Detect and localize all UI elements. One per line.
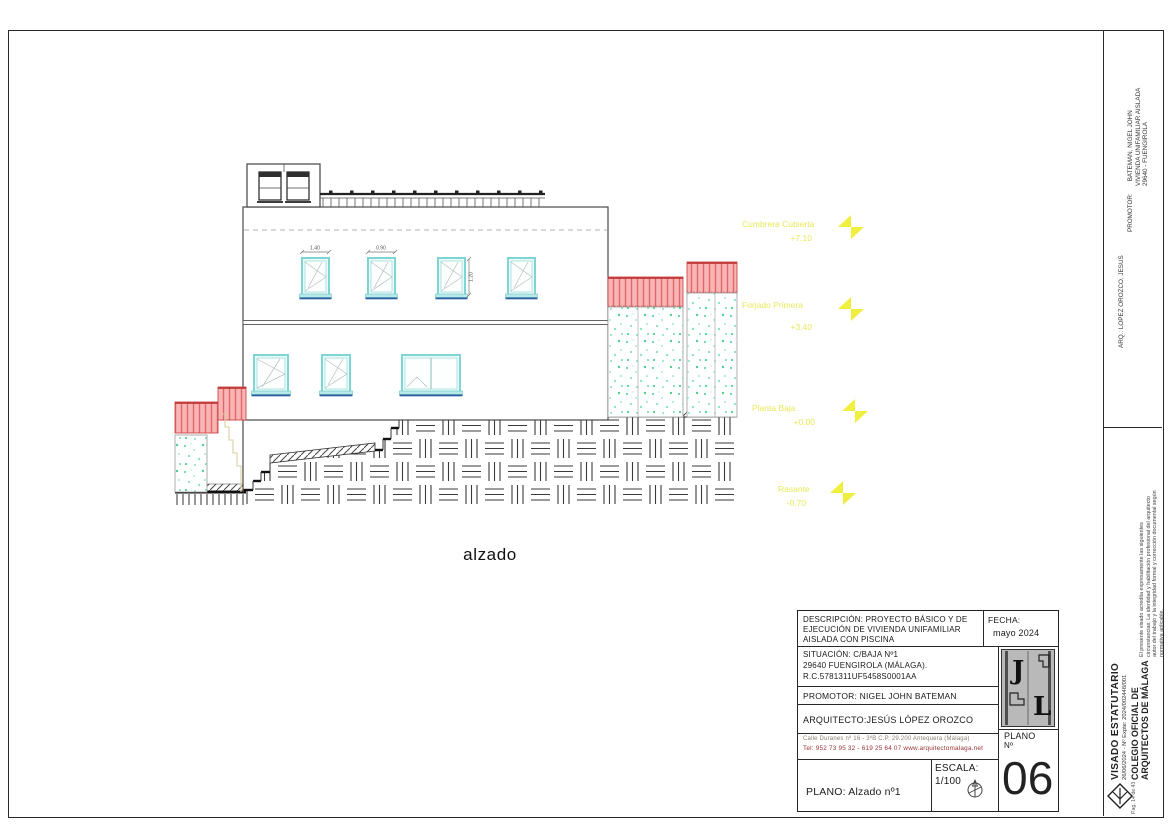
studio-phone: Tel: 952 73 95 32 - 619 25 64 07 www.arq… — [803, 745, 983, 752]
studio-address: Calle Duranes nº 16 - 3ºB C.P. 29.200 An… — [803, 736, 970, 742]
jl-architect-logo: J L — [1001, 649, 1055, 727]
escala-label: ESCALA: — [935, 763, 979, 774]
visado-stamp-block: VISADO ESTATUTARIO 26/06/2024 - Nº Expte… — [1110, 660, 1150, 780]
window-upper — [506, 258, 538, 299]
window-upper — [366, 258, 398, 299]
sidebar-promotor-line1: BATEMAN, NIGEL JOHN — [1127, 110, 1134, 181]
title-block: DESCRIPCIÓN: PROYECTO BÁSICO Y DE EJECUC… — [797, 610, 1059, 812]
level-label: Cumbrera Cubierta — [742, 219, 815, 229]
level-label: Forjado Primera — [742, 300, 803, 310]
visado-title: VISADO ESTATUTARIO — [1110, 660, 1121, 780]
window-lower — [252, 355, 291, 396]
arquitecto: ARQUITECTO:JESÚS LÓPEZ OROZCO — [803, 715, 973, 725]
roof-railing — [320, 191, 545, 208]
right-wall-green — [608, 293, 737, 417]
page-number: Pag. 14 de 43 — [1131, 782, 1137, 814]
level-value: +3.40 — [790, 322, 812, 332]
exterior-stairs — [221, 414, 241, 492]
level-marker-icon — [838, 215, 864, 239]
window-upper — [436, 258, 468, 299]
plano-num-label: PLANO — [1004, 731, 1036, 741]
sidebar-promotor-line2: VIVIENDA UNIFAMILIAR AISLADA — [1135, 88, 1143, 232]
plano-title: PLANO: Alzado nº1 — [806, 786, 901, 798]
description-line2: EJECUCIÓN DE VIVIENDA UNIFAMILIAR — [803, 625, 961, 634]
colegio-line1: COLEGIO OFICIAL DE — [1130, 660, 1140, 780]
roof-window — [285, 172, 311, 202]
fecha-label: FECHA: — [988, 615, 1020, 625]
situacion-line3: R.C.5781311UF5458S0001AA — [803, 672, 917, 681]
promotor: PROMOTOR: NIGEL JOHN BATEMAN — [803, 691, 957, 701]
floor-slab-line — [243, 321, 608, 325]
level-value: +7.10 — [790, 233, 812, 243]
terrain-hatch — [175, 409, 737, 508]
fecha-value: mayo 2024 — [993, 628, 1039, 638]
visado-ref: 26/06/2024 - Nº Expte: 2024/002448/001 — [1122, 660, 1128, 780]
drawing-sheet: GeoEstructura — [0, 0, 1168, 824]
dim-label: 1.20 — [469, 272, 475, 282]
sidebar-promotor-block: PROMOTOR:BATEMAN, NIGEL JOHN VIVIENDA UN… — [1127, 88, 1150, 232]
plano-num-sub: Nº — [1004, 741, 1013, 750]
level-label: Planta Baja — [752, 403, 796, 413]
logo-letter-l: L — [1033, 692, 1051, 722]
colegio-line2: ARQUITECTOS DE MÁLAGA — [1140, 660, 1150, 780]
sidebar-promotor-line3: 29640 - FUENGIROLA — [1142, 88, 1150, 232]
roof-window — [257, 172, 283, 202]
window-lower — [320, 355, 353, 396]
situacion-line2: 29640 FUENGIROLA (MÁLAGA). — [803, 661, 927, 670]
logo-letter-j: J — [1010, 656, 1024, 686]
plano-number: 06 — [1002, 751, 1054, 805]
description-line1: DESCRIPCIÓN: PROYECTO BÁSICO Y DE — [803, 615, 967, 624]
description-line3: AISLADA CON PISCINA — [803, 635, 894, 644]
level-marker-icon — [842, 399, 868, 423]
level-marker-icon — [830, 481, 856, 505]
drawing-caption: alzado — [450, 545, 530, 565]
north-compass-icon — [964, 777, 988, 801]
sidebar-architect: ARQ.: LOPEZ OROZCO, JESUS — [1118, 255, 1125, 348]
level-marker-icon — [838, 297, 864, 321]
left-fence-pink — [175, 387, 246, 433]
level-value: +0.00 — [793, 417, 815, 427]
sidebar-promotor-label: PROMOTOR: — [1127, 193, 1134, 232]
roof-structure — [247, 164, 320, 207]
dim-label: 1.40 — [310, 246, 320, 252]
level-label: Rasante — [778, 484, 810, 494]
level-value: -0.70 — [787, 498, 807, 508]
colegio-logo-icon — [1107, 783, 1133, 809]
situacion-line1: SITUACIÓN: C/BAJA Nº1 — [803, 650, 898, 659]
left-wall-green — [175, 435, 207, 492]
level-annotations: Cumbrera Cubierta +7.10 Forjado Primera … — [742, 215, 868, 508]
window-upper — [300, 258, 332, 299]
dim-label: 0.90 — [376, 246, 386, 252]
visado-legal-text: El presente visado acredita expresamente… — [1139, 489, 1165, 657]
escala-value: 1/100 — [935, 776, 961, 787]
window-lower-wide — [400, 355, 463, 396]
